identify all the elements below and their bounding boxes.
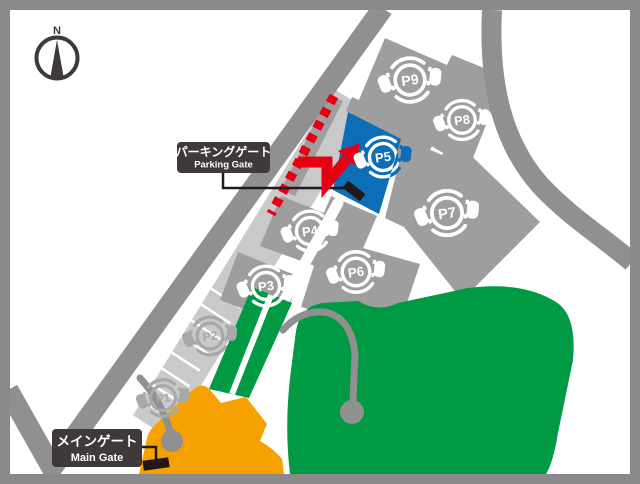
main-gate-label-en: Main Gate xyxy=(71,452,124,464)
svg-text:P5: P5 xyxy=(374,149,392,166)
parking-gate-label: パーキングゲート Parking Gate xyxy=(176,142,272,173)
svg-text:P1: P1 xyxy=(155,390,172,406)
svg-text:P8: P8 xyxy=(453,111,471,128)
parking-map: P1 P2 P3 P4 P5 xyxy=(0,0,640,484)
svg-text:P4: P4 xyxy=(301,222,320,239)
svg-text:P6: P6 xyxy=(347,264,365,281)
cul-de-sac xyxy=(161,430,183,452)
svg-text:P2: P2 xyxy=(202,328,219,344)
map-canvas: P1 P2 P3 P4 P5 xyxy=(0,0,640,484)
main-gate-label: メインゲート Main Gate xyxy=(52,429,142,467)
park-road-deadend xyxy=(340,400,364,424)
parking-gate-label-ja: パーキングゲート xyxy=(176,144,272,159)
compass-north-label: N xyxy=(53,25,61,37)
svg-text:P7: P7 xyxy=(437,205,457,223)
svg-text:P9: P9 xyxy=(400,72,420,90)
parking-gate-label-en: Parking Gate xyxy=(194,160,253,171)
svg-text:P3: P3 xyxy=(257,278,275,295)
main-gate-label-ja: メインゲート xyxy=(57,433,138,449)
